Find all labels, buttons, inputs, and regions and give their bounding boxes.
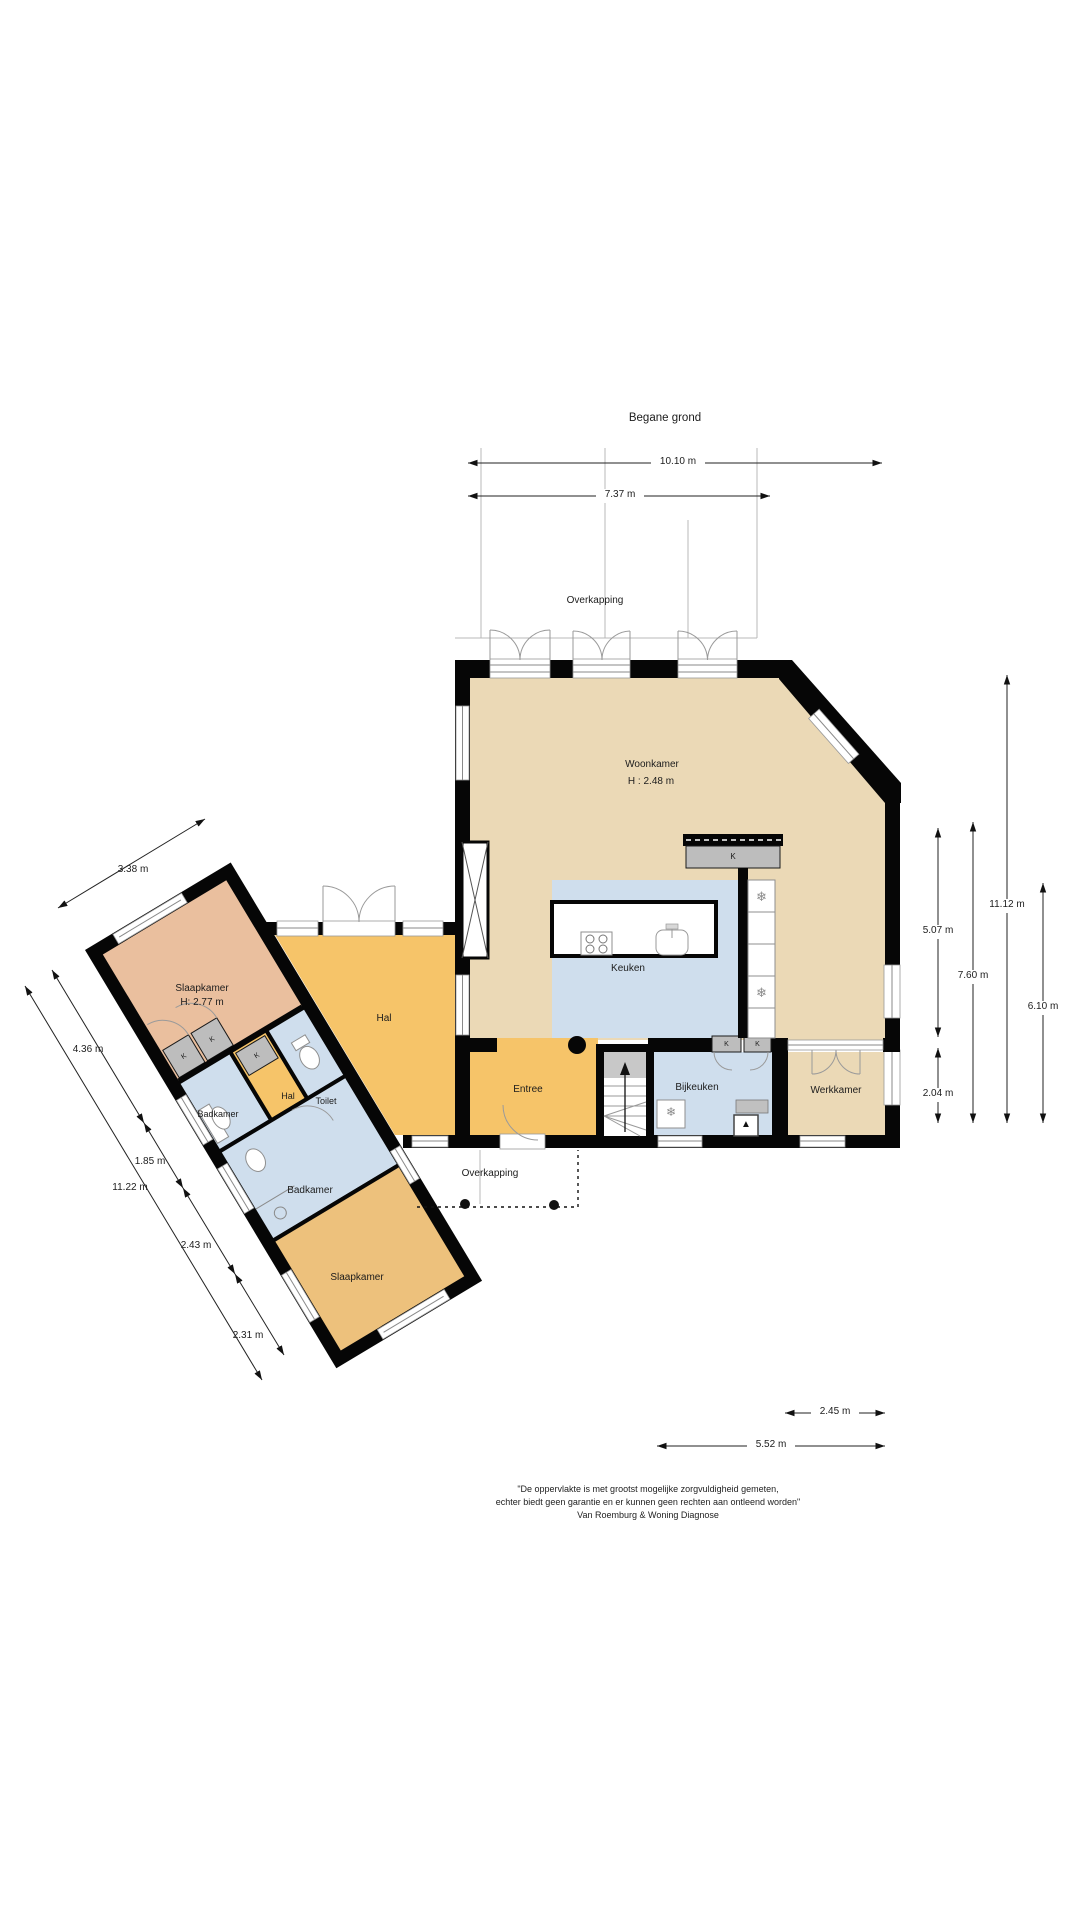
dim-right-lower: 2.04 m <box>914 1048 962 1123</box>
cooktop-icon <box>581 932 612 955</box>
fridge-icon: ❄ <box>756 985 767 1000</box>
label-slaapkamer-boven-height: H: 2.77 m <box>180 997 223 1008</box>
svg-text:echter biedt geen garantie en: echter biedt geen garantie en er kunnen … <box>496 1497 800 1507</box>
svg-text:6.10 m: 6.10 m <box>1028 1001 1059 1012</box>
appliance-column: ❄ ❄ <box>738 868 775 1038</box>
label-keuken: Keuken <box>611 963 645 974</box>
overkapping-bottom <box>417 1150 578 1210</box>
label-werkkamer: Werkkamer <box>811 1085 863 1096</box>
porch-post <box>549 1200 559 1210</box>
dim-top-inner: 7.37 m <box>468 489 770 503</box>
label-badkamer-groot: Badkamer <box>287 1185 333 1196</box>
svg-text:3.38 m: 3.38 m <box>118 864 149 875</box>
wall-bijkeuken-werkkamer <box>772 1038 788 1148</box>
label-hal-klein: Hal <box>281 1091 295 1101</box>
svg-text:11.12 m: 11.12 m <box>989 899 1024 910</box>
dim-bottom-outer: 5.52 m <box>657 1439 885 1453</box>
label-hal: Hal <box>376 1013 391 1024</box>
dim-top-outer: 10.10 m <box>468 456 882 470</box>
label-entree: Entree <box>513 1084 543 1095</box>
svg-text:5.52 m: 5.52 m <box>756 1439 787 1450</box>
label-slaapkamer-boven: Slaapkamer <box>175 983 229 994</box>
svg-text:4.36 m: 4.36 m <box>73 1044 104 1055</box>
dim-right-inner: 6.10 m <box>1019 883 1067 1123</box>
overkapping-bottom-label: Overkapping <box>462 1168 519 1179</box>
label-woonkamer: Woonkamer <box>625 759 679 770</box>
svg-text:K: K <box>755 1041 760 1048</box>
svg-text:"De oppervlakte is met grootst: "De oppervlakte is met grootst mogelijke… <box>517 1484 778 1494</box>
label-woonkamer-height: H : 2.48 m <box>628 776 674 787</box>
svg-text:11.22 m: 11.22 m <box>112 1182 147 1193</box>
hal-top-openings <box>277 886 443 936</box>
label-slaapkamer-onder: Slaapkamer <box>330 1272 384 1283</box>
label-badkamer-klein: Badkamer <box>197 1109 238 1119</box>
floorplan-page: Begane grond Overkapping <box>0 0 1080 1920</box>
doors-top-wall <box>490 630 737 678</box>
dim-bottom-inner: 2.45 m <box>785 1406 885 1420</box>
page-title: Begane grond <box>629 412 701 424</box>
column-post <box>568 1036 586 1054</box>
svg-text:7.37 m: 7.37 m <box>605 489 636 500</box>
kitchen-island <box>552 902 716 956</box>
overkapping-top-outline <box>455 448 757 638</box>
svg-text:5.07 m: 5.07 m <box>923 925 954 936</box>
shaft <box>462 842 488 958</box>
svg-text:2.43 m: 2.43 m <box>181 1240 212 1251</box>
dim-right-wall: 5.07 m <box>914 828 962 1037</box>
svg-text:Van Roemburg & Woning Diagnose: Van Roemburg & Woning Diagnose <box>577 1510 719 1520</box>
label-toilet: Toilet <box>315 1096 337 1106</box>
svg-text:▲: ▲ <box>741 1119 751 1130</box>
floorplan-drawing: Begane grond Overkapping <box>0 0 1080 1920</box>
porch-post <box>460 1199 470 1209</box>
svg-text:K: K <box>730 852 736 861</box>
freezer-icon: ❄ <box>756 889 767 904</box>
svg-text:2.45 m: 2.45 m <box>820 1406 851 1417</box>
svg-text:7.60 m: 7.60 m <box>958 970 989 981</box>
footer-disclaimer: "De oppervlakte is met grootst mogelijke… <box>496 1484 800 1520</box>
overkapping-top-label: Overkapping <box>567 595 624 606</box>
kitchen-closet: K <box>683 834 783 868</box>
dim-right-outer: 11.12 m <box>980 675 1034 1123</box>
shelf <box>736 1100 768 1113</box>
svg-text:K: K <box>724 1041 729 1048</box>
label-bijkeuken: Bijkeuken <box>675 1082 718 1093</box>
stairs <box>596 1044 654 1144</box>
svg-text:10.10 m: 10.10 m <box>660 456 696 467</box>
svg-text:2.04 m: 2.04 m <box>923 1088 954 1099</box>
freezer2-icon: ❄ <box>666 1105 676 1119</box>
svg-text:1.85 m: 1.85 m <box>135 1156 166 1167</box>
dim-right-mid: 7.60 m <box>949 822 997 1123</box>
